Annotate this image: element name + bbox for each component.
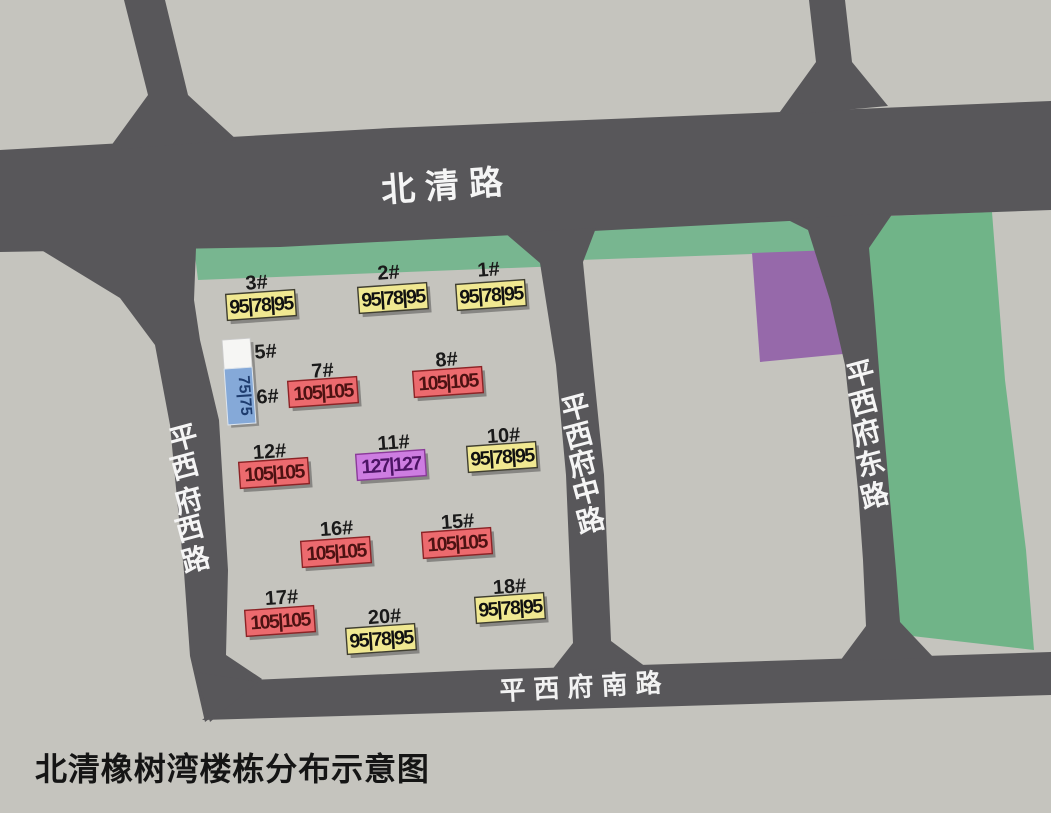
svg-text:105|105: 105|105	[250, 608, 312, 634]
svg-text:6#: 6#	[256, 385, 280, 408]
svg-text:95|78|95: 95|78|95	[478, 595, 544, 621]
svg-text:95|78|95: 95|78|95	[349, 626, 415, 652]
svg-text:105|105: 105|105	[427, 530, 489, 556]
svg-text:127|127: 127|127	[361, 452, 422, 478]
svg-text:北清橡树湾楼栋分布示意图: 北清橡树湾楼栋分布示意图	[35, 751, 430, 787]
svg-text:105|105: 105|105	[244, 460, 306, 486]
svg-text:95|78|95: 95|78|95	[470, 444, 536, 470]
svg-text:2#: 2#	[377, 261, 401, 284]
svg-text:95|78|95: 95|78|95	[459, 282, 525, 308]
svg-text:105|105: 105|105	[418, 369, 480, 395]
svg-text:5#: 5#	[254, 340, 278, 363]
svg-text:75|75: 75|75	[235, 375, 255, 416]
svg-text:105|105: 105|105	[306, 539, 368, 565]
svg-text:95|78|95: 95|78|95	[361, 285, 427, 311]
svg-text:105|105: 105|105	[293, 379, 355, 405]
svg-text:95|78|95: 95|78|95	[229, 292, 295, 318]
svg-text:1#: 1#	[477, 258, 501, 281]
